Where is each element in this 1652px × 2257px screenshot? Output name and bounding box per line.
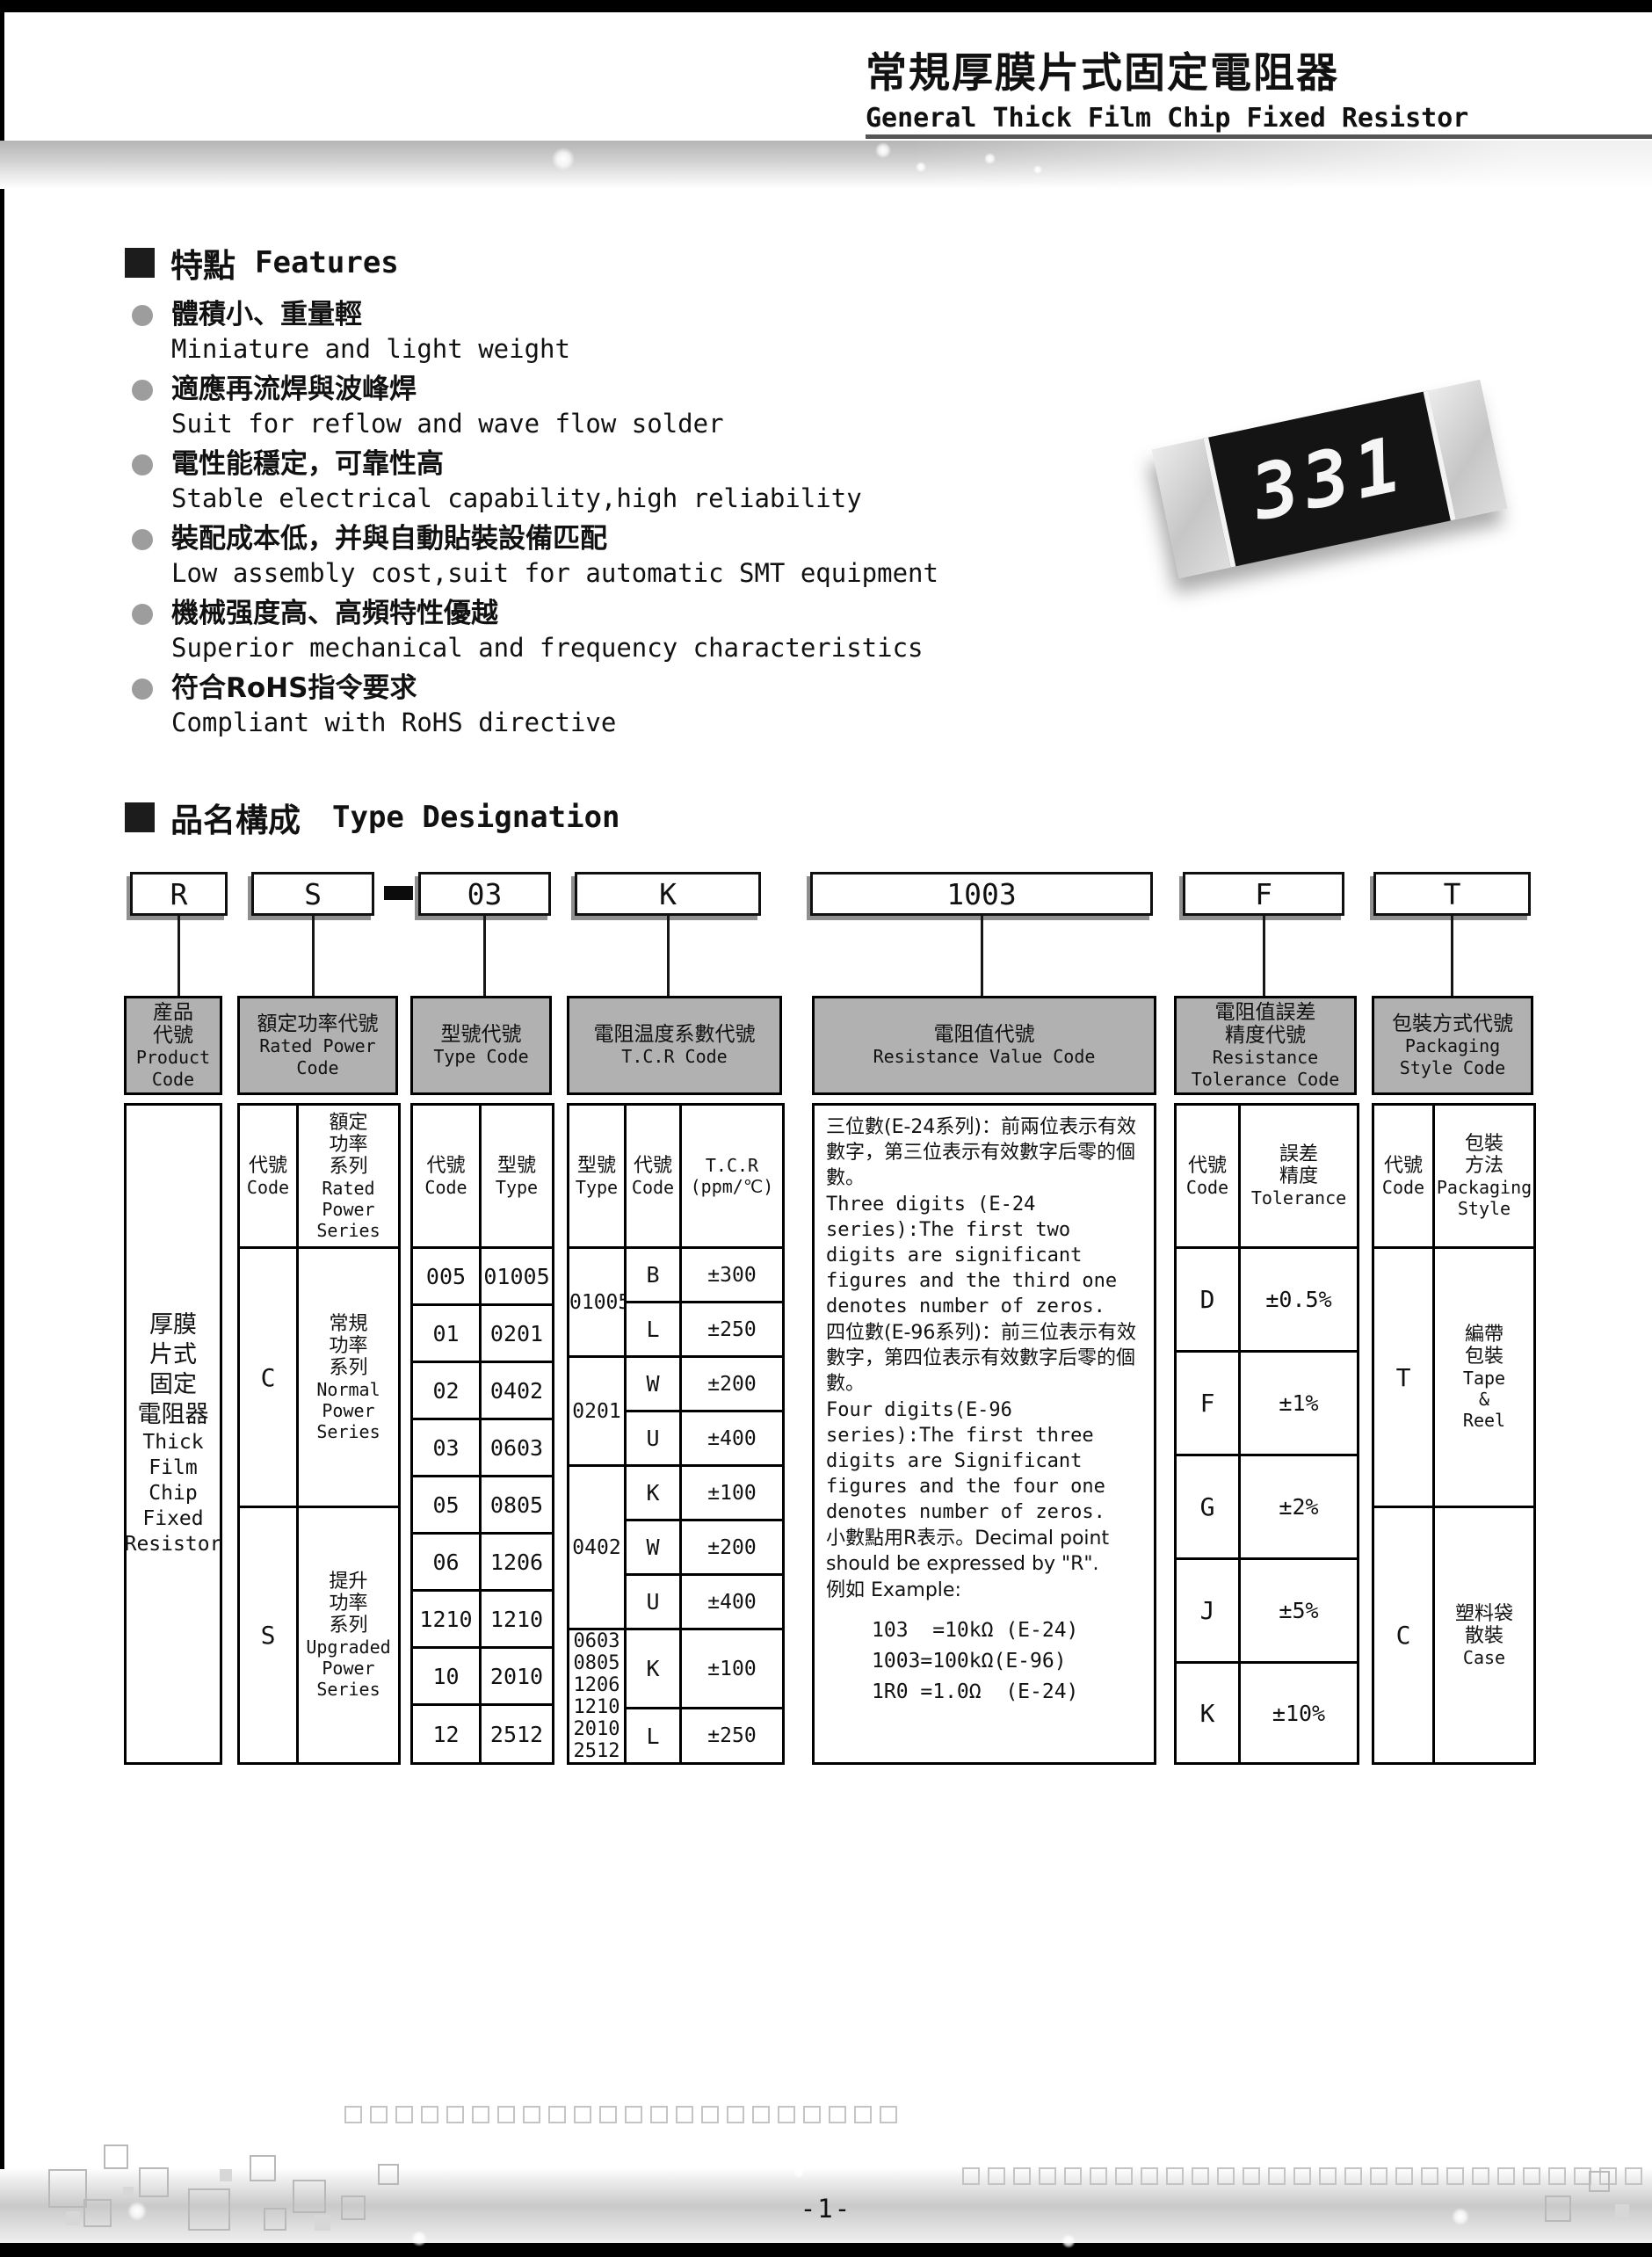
type-row-type: 01005 [481,1248,554,1305]
features-heading-en: Features [255,245,399,280]
power-code-S: S [239,1507,298,1764]
feature-zh: 體積小、重量輕 [171,297,362,333]
type-row-type: 0603 [481,1419,554,1477]
tcr-code: U [626,1575,681,1629]
bullet-icon [132,305,153,326]
features-section-heading: 特點 Features [125,239,399,287]
type-designation-heading: 品名構成 Type Designation [125,794,620,841]
code-box-power: S [251,872,374,916]
tcr-code: L [626,1303,681,1357]
code-box-value: 1003 [810,872,1153,916]
feature-en: Low assembly cost,suit for automatic SMT… [171,558,1098,588]
connector-line [1263,916,1265,996]
code-box-tolerance: F [1183,872,1344,916]
tcr-subheader-tcr: T.C.R (ppm/℃) [681,1105,784,1248]
type-row-type: 1206 [481,1534,554,1591]
footer-square-strip [962,2167,1642,2185]
sparkle-dot [1033,165,1042,174]
footer-square [104,2145,128,2169]
feature-zh: 電性能穩定，可靠性高 [171,446,444,483]
title-english: General Thick Film Chip Fixed Resistor [866,103,1468,134]
tcr-code: W [626,1520,681,1575]
section-square-icon [125,802,155,832]
title-chinese: 常規厚膜片式固定電阻器 [866,51,1468,97]
features-heading-zh: 特點 [170,239,235,287]
power-series-normal: 常規 功率 系列 Normal Power Series [298,1248,400,1507]
type-row-type: 0402 [481,1362,554,1419]
footer-square [139,2167,169,2197]
power-code-C: C [239,1248,298,1507]
type-row-code: 1210 [412,1591,481,1648]
packaging-subheader-code: 代號 Code [1373,1105,1434,1248]
tcr-value: ±250 [681,1709,784,1764]
page-number: -1- [0,2194,1652,2224]
header-resistance-tolerance-code: 電阻值誤差 精度代號 Resistance Tolerance Code [1174,996,1357,1095]
feature-item: 裝配成本低，并與自動貼裝設備匹配 Low assembly cost,suit … [132,521,1098,588]
sparkle-dot [793,2167,804,2178]
bullet-icon [132,454,153,475]
tolerance-value: ±1% [1240,1352,1359,1455]
type-row-type: 0201 [481,1305,554,1362]
power-subheader-series: 額定 功率 系列 Rated Power Series [298,1105,400,1248]
code-separator-dash: - [384,886,413,900]
power-subheader-code: 代號 Code [239,1105,298,1248]
feature-item: 符合RoHS指令要求 Compliant with RoHS directive [132,671,1098,737]
tolerance-value: ±10% [1240,1663,1359,1764]
title-underline [866,134,1652,139]
feature-item: 適應再流焊與波峰焊 Suit for reflow and wave flow … [132,372,1098,439]
section-square-icon [125,248,155,278]
page-title: 常規厚膜片式固定電阻器 General Thick Film Chip Fixe… [866,51,1468,134]
tcr-value: ±100 [681,1629,784,1709]
product-description-cell: 厚膜 片式 固定 電阻器 Thick Film Chip Fixed Resis… [124,1103,222,1765]
header-gradient-band [0,141,1652,189]
code-box-product: R [130,872,228,916]
type-code-table: 代號 Code 型號 Type 00501005 010201 020402 0… [410,1103,554,1765]
tolerance-value: ±0.5% [1240,1248,1359,1352]
tcr-type-0201: 0201 [569,1357,626,1466]
bullet-icon [132,679,153,700]
tcr-code: K [626,1466,681,1520]
type-row-code: 06 [412,1534,481,1591]
type-designation-heading-zh: 品名構成 [170,794,301,841]
footer-square [1589,2171,1610,2192]
tcr-type-01005: 01005 [569,1248,626,1357]
sparkle-dot [875,142,891,158]
connector-line [981,916,983,996]
packaging-style-tape-reel: 編帶 包裝 Tape & Reel [1434,1248,1535,1507]
sparkle-dot [411,2231,427,2246]
type-row-code: 01 [412,1305,481,1362]
feature-item: 體積小、重量輕 Miniature and light weight [132,297,1098,364]
tolerance-subheader-tol: 誤差 精度 Tolerance [1240,1105,1359,1248]
code-box-type: 03 [418,872,551,916]
rated-power-table: 代號 Code 額定 功率 系列 Rated Power Series C 常規… [237,1103,401,1765]
feature-en: Suit for reflow and wave flow solder [171,409,1098,439]
tcr-value: ±200 [681,1357,784,1412]
resistor-marking: 331 [1244,420,1414,538]
tcr-value: ±200 [681,1520,784,1575]
tcr-type-group: 0603 0805 1206 1210 2010 2512 [569,1629,626,1764]
type-row-type: 2010 [481,1648,554,1705]
tolerance-subheader-code: 代號 Code [1176,1105,1240,1248]
value-example: 1003=100kΩ(E-96) [872,1646,1142,1677]
header-type-code: 型號代號 Type Code [410,996,552,1095]
packaging-code-C: C [1373,1507,1434,1764]
tcr-table: 型號 Type 代號 Code T.C.R (ppm/℃) 01005 B ±3… [567,1103,785,1765]
page-top-border [0,0,1652,12]
tcr-value: ±400 [681,1412,784,1466]
tolerance-code: F [1176,1352,1240,1455]
tcr-code: L [626,1709,681,1764]
chip-resistor-photo: 331 [1152,380,1508,578]
type-row-code: 02 [412,1362,481,1419]
sparkle-dot [552,148,575,171]
tolerance-table: 代號 Code 誤差 精度 Tolerance D±0.5% F±1% G±2%… [1174,1103,1359,1765]
header-product-code: 産品 代號 Product Code [124,996,222,1095]
connector-line [667,916,670,996]
page-left-border [0,0,4,2257]
bullet-icon [132,529,153,550]
type-row-type: 0805 [481,1477,554,1534]
sparkle-dot [916,162,926,172]
tcr-value: ±250 [681,1303,784,1357]
page-bottom-border [0,2241,1652,2257]
type-row-code: 005 [412,1248,481,1305]
feature-en: Stable electrical capability,high reliab… [171,483,1098,513]
tolerance-value: ±5% [1240,1559,1359,1663]
type-subheader-type: 型號 Type [481,1105,554,1248]
tcr-code: K [626,1629,681,1709]
tolerance-code: J [1176,1559,1240,1663]
feature-item: 電性能穩定，可靠性高 Stable electrical capability,… [132,446,1098,513]
value-example: 103 =10kΩ (E-24) [872,1615,1142,1646]
feature-en: Superior mechanical and frequency charac… [171,633,1098,663]
tcr-code: U [626,1412,681,1466]
resistor-body: 331 [1203,390,1455,567]
feature-zh: 適應再流焊與波峰焊 [171,372,417,408]
resistance-value-description: 三位數(E-24系列)：前兩位表示有效數字，第三位表示有效數字后零的個數。 Th… [812,1103,1156,1765]
type-row-code: 10 [412,1648,481,1705]
tcr-code: W [626,1357,681,1412]
sparkle-dot [984,153,996,164]
header-rated-power-code: 額定功率代號 Rated Power Code [237,996,398,1095]
packaging-table: 代號 Code 包裝 方法 Packaging Style T 編帶 包裝 Ta… [1372,1103,1536,1765]
tcr-value: ±300 [681,1248,784,1303]
packaging-subheader-style: 包裝 方法 Packaging Style [1434,1105,1535,1248]
packaging-code-T: T [1373,1248,1434,1507]
type-row-code: 12 [412,1705,481,1764]
connector-line [312,916,315,996]
header-tcr-code: 電阻温度系數代號 T.C.R Code [567,996,782,1095]
tcr-value: ±100 [681,1466,784,1520]
footer-square [378,2164,399,2185]
header-resistance-value-code: 電阻值代號 Resistance Value Code [812,996,1156,1095]
type-designation-heading-en: Type Designation [332,800,620,835]
footer-square [220,2169,232,2181]
tolerance-value: ±2% [1240,1455,1359,1559]
type-row-type: 1210 [481,1591,554,1648]
bullet-icon [132,380,153,401]
connector-line [178,916,180,996]
packaging-style-case: 塑料袋 散裝 Case [1434,1507,1535,1764]
type-row-type: 2512 [481,1705,554,1764]
type-row-code: 05 [412,1477,481,1534]
footer-square [250,2155,276,2181]
connector-line [483,916,486,996]
value-example: 1R0 =1.0Ω (E-24) [872,1677,1142,1708]
code-box-packaging: T [1373,872,1531,916]
feature-zh: 符合RoHS指令要求 [171,671,417,707]
code-box-tcr: K [575,872,761,916]
tcr-type-0402: 0402 [569,1466,626,1629]
feature-item: 機械强度高、高頻特性優越 Superior mechanical and fre… [132,596,1098,663]
power-series-upgraded: 提升 功率 系列 Upgraded Power Series [298,1507,400,1764]
footer-square-strip [344,2106,897,2123]
type-subheader-code: 代號 Code [412,1105,481,1248]
features-list: 體積小、重量輕 Miniature and light weight 適應再流焊… [132,297,1098,745]
header-packaging-style-code: 包裝方式代號 Packaging Style Code [1372,996,1533,1095]
tcr-code: B [626,1248,681,1303]
connector-line [1451,916,1453,996]
sparkle-dot [1061,2234,1076,2248]
tolerance-code: K [1176,1663,1240,1764]
type-row-code: 03 [412,1419,481,1477]
tolerance-code: D [1176,1248,1240,1352]
bullet-icon [132,604,153,625]
tcr-subheader-code: 代號 Code [626,1105,681,1248]
feature-zh: 機械强度高、高頻特性優越 [171,596,498,632]
feature-zh: 裝配成本低，并與自動貼裝設備匹配 [171,521,607,557]
feature-en: Miniature and light weight [171,334,1098,364]
feature-en: Compliant with RoHS directive [171,708,1098,737]
datasheet-page: { "header": { "title_zh": "常規厚膜片式固定電阻器",… [0,0,1652,2257]
tcr-subheader-type: 型號 Type [569,1105,626,1248]
tolerance-code: G [1176,1455,1240,1559]
tcr-value: ±400 [681,1575,784,1629]
sparkle-dot [615,2145,627,2157]
